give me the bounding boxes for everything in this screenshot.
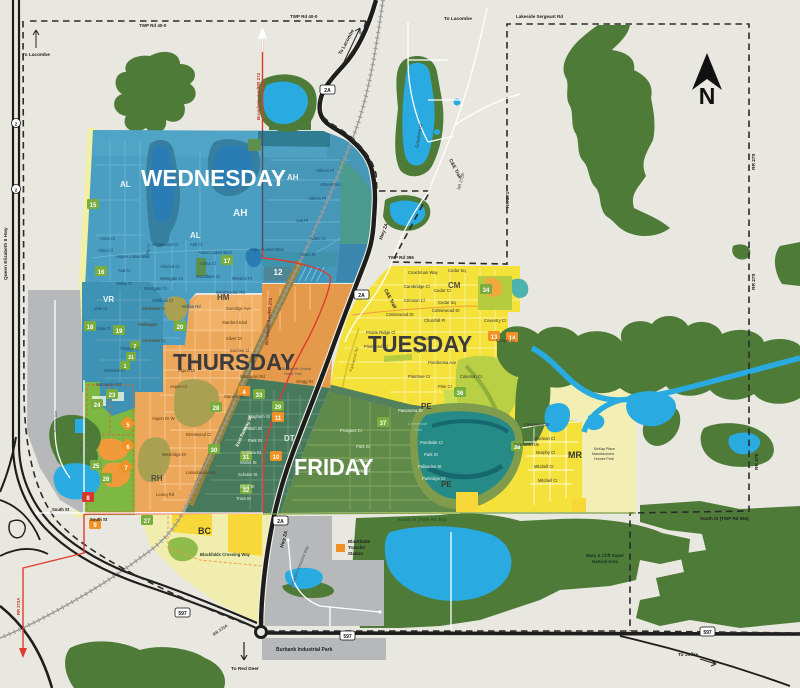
svg-text:15: 15 bbox=[90, 203, 97, 209]
svg-text:Cottonwood Dr: Cottonwood Dr bbox=[386, 312, 415, 317]
svg-text:TWP Rd 40-0: TWP Rd 40-0 bbox=[139, 23, 167, 28]
svg-text:Arrowwood Cl: Arrowwood Cl bbox=[152, 242, 178, 247]
svg-text:AH: AH bbox=[233, 208, 247, 219]
svg-text:Cambridge Cl: Cambridge Cl bbox=[404, 284, 430, 289]
svg-text:Palisades St: Palisades St bbox=[418, 464, 442, 469]
svg-text:RR 270: RR 270 bbox=[751, 273, 757, 290]
svg-text:Westridge Dr: Westridge Dr bbox=[162, 452, 187, 457]
svg-text:19: 19 bbox=[116, 329, 123, 335]
svg-text:Gregg St: Gregg St bbox=[296, 379, 314, 384]
svg-text:Plumtree Cr: Plumtree Cr bbox=[408, 374, 431, 379]
svg-text:Camille Cr: Camille Cr bbox=[420, 336, 440, 341]
svg-text:TWP Rd 40-0: TWP Rd 40-0 bbox=[290, 14, 318, 19]
svg-text:Silver Dr: Silver Dr bbox=[226, 336, 243, 341]
svg-text:Waghorn St: Waghorn St bbox=[248, 414, 271, 419]
svg-text:Sunridge Ave: Sunridge Ave bbox=[226, 306, 252, 311]
svg-text:Athens Pl: Athens Pl bbox=[316, 168, 334, 173]
svg-text:Home Park: Home Park bbox=[284, 372, 302, 376]
svg-text:33: 33 bbox=[256, 393, 263, 399]
svg-text:Coachman Way: Coachman Way bbox=[408, 270, 439, 275]
svg-text:Churchill Pl: Churchill Pl bbox=[424, 318, 445, 323]
svg-text:Mitchell Cr: Mitchell Cr bbox=[534, 464, 554, 469]
svg-text:34: 34 bbox=[483, 288, 490, 294]
svg-text:Park: Park bbox=[414, 427, 423, 432]
svg-text:To Lacombe: To Lacombe bbox=[22, 52, 50, 58]
svg-text:2A: 2A bbox=[358, 293, 365, 299]
svg-text:Vista Tr: Vista Tr bbox=[78, 441, 83, 455]
svg-text:Park St: Park St bbox=[248, 438, 263, 443]
svg-text:MR: MR bbox=[568, 450, 582, 460]
svg-text:Prospect Cr: Prospect Cr bbox=[340, 428, 363, 433]
svg-text:Westgate Cr: Westgate Cr bbox=[144, 286, 168, 291]
svg-text:RR 271: RR 271 bbox=[505, 191, 511, 208]
svg-text:Athens Rd: Athens Rd bbox=[320, 182, 340, 187]
svg-text:Wilson St: Wilson St bbox=[244, 426, 263, 431]
svg-text:Mitchell Cr: Mitchell Cr bbox=[538, 478, 558, 483]
svg-text:16: 16 bbox=[98, 270, 105, 276]
svg-text:18: 18 bbox=[87, 325, 94, 331]
svg-text:RH: RH bbox=[151, 474, 163, 483]
svg-text:Blackfalds Crossing Way: Blackfalds Crossing Way bbox=[200, 552, 251, 557]
svg-text:597: 597 bbox=[703, 630, 712, 636]
svg-text:DT: DT bbox=[284, 434, 295, 443]
svg-text:Vista Cl: Vista Cl bbox=[96, 326, 110, 331]
svg-text:Wellington: Wellington bbox=[138, 322, 158, 327]
svg-text:TWP Rd 395: TWP Rd 395 bbox=[388, 255, 414, 260]
svg-text:25: 25 bbox=[93, 464, 100, 470]
svg-text:Duncan Ave: Duncan Ave bbox=[53, 410, 58, 432]
svg-text:Westgate Cr: Westgate Cr bbox=[160, 276, 184, 281]
svg-text:Ava Cr: Ava Cr bbox=[118, 268, 131, 273]
svg-text:Lansdowne Ave: Lansdowne Ave bbox=[186, 470, 216, 475]
svg-text:Whitlock Cl: Whitlock Cl bbox=[152, 298, 173, 303]
svg-text:Stanley St: Stanley St bbox=[224, 394, 244, 399]
svg-text:Brentwood Cr: Brentwood Cr bbox=[186, 432, 212, 437]
svg-text:South St (TWP Rd 394): South St (TWP Rd 394) bbox=[398, 517, 447, 522]
svg-text:Willow Rd: Willow Rd bbox=[182, 304, 201, 309]
svg-text:Ponderosa Ave: Ponderosa Ave bbox=[428, 360, 457, 365]
svg-text:Manufactured: Manufactured bbox=[592, 452, 614, 456]
svg-text:20: 20 bbox=[177, 325, 184, 331]
svg-text:Aspen Dr: Aspen Dr bbox=[178, 368, 196, 373]
svg-text:Prairie Ridge Cl: Prairie Ridge Cl bbox=[366, 330, 395, 335]
svg-text:Burbank Industrial Park: Burbank Industrial Park bbox=[276, 647, 333, 653]
svg-text:Cyprus Rd: Cyprus Rd bbox=[414, 348, 434, 353]
svg-text:Arlen Cl: Arlen Cl bbox=[98, 248, 113, 253]
svg-text:Vintage Cl: Vintage Cl bbox=[120, 346, 139, 351]
svg-text:AL: AL bbox=[190, 231, 201, 240]
svg-text:Broadway Ave/RR 272: Broadway Ave/RR 272 bbox=[256, 72, 261, 120]
svg-text:McKay Place: McKay Place bbox=[594, 447, 615, 451]
svg-text:Park St: Park St bbox=[424, 452, 439, 457]
svg-text:VR: VR bbox=[103, 295, 114, 304]
svg-text:Cottonwood Dr: Cottonwood Dr bbox=[432, 308, 461, 313]
svg-text:Ava Pl: Ava Pl bbox=[296, 218, 308, 223]
svg-text:Leung Rd: Leung Rd bbox=[156, 492, 175, 497]
svg-text:To Lacombe: To Lacombe bbox=[444, 16, 472, 22]
svg-text:Aspen Lakes Blvd: Aspen Lakes Blvd bbox=[250, 247, 284, 252]
svg-text:Schular St: Schular St bbox=[238, 472, 258, 477]
svg-text:Winks St: Winks St bbox=[240, 460, 257, 465]
svg-text:Westview Cr: Westview Cr bbox=[142, 306, 166, 311]
svg-text:Pine Cr: Pine Cr bbox=[438, 384, 453, 389]
svg-text:Westbrooke Rd: Westbrooke Rd bbox=[216, 290, 245, 295]
svg-text:RR 270: RR 270 bbox=[754, 453, 760, 470]
svg-text:Indiana St: Indiana St bbox=[242, 450, 262, 455]
svg-text:Aspen Cr: Aspen Cr bbox=[170, 384, 188, 389]
svg-text:Lakeside Sergeant Rd: Lakeside Sergeant Rd bbox=[516, 14, 563, 19]
svg-text:17: 17 bbox=[224, 259, 231, 265]
svg-text:11: 11 bbox=[275, 416, 282, 422]
svg-text:RR 270: RR 270 bbox=[751, 153, 757, 170]
svg-text:South St: South St bbox=[90, 517, 108, 522]
svg-text:Vale Cl: Vale Cl bbox=[94, 306, 107, 311]
svg-text:10: 10 bbox=[273, 455, 280, 461]
svg-text:Station: Station bbox=[348, 551, 363, 556]
svg-text:2A: 2A bbox=[277, 519, 284, 525]
svg-text:Coleman Cr: Coleman Cr bbox=[460, 374, 483, 379]
svg-text:Shull St: Shull St bbox=[240, 484, 255, 489]
svg-text:30: 30 bbox=[211, 448, 218, 454]
svg-text:Homes Park: Homes Park bbox=[594, 457, 614, 461]
svg-text:BC: BC bbox=[198, 526, 211, 536]
svg-text:Aspen Dr W: Aspen Dr W bbox=[152, 416, 175, 421]
svg-text:Cedar Sq: Cedar Sq bbox=[448, 268, 466, 273]
svg-text:29: 29 bbox=[275, 405, 282, 411]
svg-text:Athens Pl: Athens Pl bbox=[308, 196, 326, 201]
svg-text:Natural Area: Natural Area bbox=[592, 559, 619, 564]
svg-text:12: 12 bbox=[274, 268, 283, 277]
svg-text:597: 597 bbox=[343, 634, 352, 640]
svg-text:597: 597 bbox=[178, 611, 187, 617]
svg-text:21: 21 bbox=[128, 355, 134, 361]
svg-text:Crimson Cl: Crimson Cl bbox=[404, 298, 425, 303]
svg-text:Trout St: Trout St bbox=[236, 496, 252, 501]
svg-text:AH: AH bbox=[287, 173, 299, 182]
svg-text:To Red Deer: To Red Deer bbox=[231, 666, 259, 672]
svg-text:Pinnacle Cl: Pinnacle Cl bbox=[352, 458, 373, 463]
svg-text:Pondside Cr: Pondside Cr bbox=[420, 440, 444, 445]
svg-text:Blacksmith Mobile: Blacksmith Mobile bbox=[282, 367, 311, 371]
svg-text:Panorama Dr: Panorama Dr bbox=[398, 408, 424, 413]
svg-text:27: 27 bbox=[144, 519, 151, 525]
svg-text:Sunrise Cl: Sunrise Cl bbox=[230, 348, 249, 353]
svg-text:Eastpointe Dr: Eastpointe Dr bbox=[524, 422, 550, 427]
svg-text:28: 28 bbox=[213, 406, 220, 412]
svg-text:Womacks Rd: Womacks Rd bbox=[96, 382, 121, 387]
svg-text:Park St: Park St bbox=[356, 444, 371, 449]
svg-text:Mary & Cliff Soper: Mary & Cliff Soper bbox=[586, 553, 624, 558]
svg-text:Blackfalds: Blackfalds bbox=[348, 539, 371, 544]
svg-text:Aztec St: Aztec St bbox=[300, 252, 316, 257]
svg-text:Womacks Rd: Womacks Rd bbox=[240, 374, 265, 379]
svg-text:Murphy Cl: Murphy Cl bbox=[536, 450, 555, 455]
svg-text:Aztec Cr: Aztec Cr bbox=[310, 236, 327, 241]
svg-text:23: 23 bbox=[109, 393, 116, 399]
svg-text:Palmer Circle: Palmer Circle bbox=[514, 442, 540, 447]
svg-text:Winston Pl: Winston Pl bbox=[232, 276, 252, 281]
svg-text:Cedar Cr: Cedar Cr bbox=[434, 288, 452, 293]
svg-text:Almond Cr: Almond Cr bbox=[160, 264, 180, 269]
svg-text:Westview Cr: Westview Cr bbox=[142, 338, 166, 343]
svg-text:Valley Cr: Valley Cr bbox=[116, 281, 133, 286]
svg-text:Vermont Cl: Vermont Cl bbox=[104, 368, 125, 373]
svg-text:Transfer: Transfer bbox=[348, 545, 366, 550]
svg-text:Queen Elizabeth II Hwy: Queen Elizabeth II Hwy bbox=[3, 227, 9, 280]
svg-text:Pinewood Cl: Pinewood Cl bbox=[364, 344, 388, 349]
svg-text:South St (TWP Rd 394): South St (TWP Rd 394) bbox=[700, 516, 749, 521]
svg-text:South St: South St bbox=[52, 507, 70, 512]
svg-text:Ash Cl: Ash Cl bbox=[190, 242, 202, 247]
svg-text:Anna Cl: Anna Cl bbox=[100, 236, 115, 241]
svg-text:2A: 2A bbox=[324, 88, 331, 94]
svg-text:To Joffre: To Joffre bbox=[678, 652, 698, 658]
svg-text:Coventry Cl: Coventry Cl bbox=[484, 318, 506, 323]
svg-text:PE: PE bbox=[441, 480, 452, 489]
svg-text:WEDNESDAY: WEDNESDAY bbox=[141, 165, 286, 191]
svg-text:Portway Cl: Portway Cl bbox=[350, 468, 370, 473]
svg-text:N: N bbox=[699, 83, 716, 109]
svg-text:Aspen Lakes Blvd: Aspen Lakes Blvd bbox=[198, 250, 232, 255]
svg-text:Cedar Sq: Cedar Sq bbox=[438, 300, 456, 305]
svg-text:24: 24 bbox=[94, 403, 101, 409]
svg-text:RR 273A: RR 273A bbox=[16, 598, 21, 615]
svg-text:Stanford Blvd: Stanford Blvd bbox=[222, 320, 248, 325]
svg-text:Maclean Cl: Maclean Cl bbox=[534, 436, 555, 441]
svg-text:26: 26 bbox=[103, 477, 110, 483]
svg-text:Parkridge Cr: Parkridge Cr bbox=[422, 476, 446, 481]
svg-text:37: 37 bbox=[380, 421, 387, 427]
svg-text:AL: AL bbox=[120, 180, 131, 189]
svg-text:Woodbine Cl: Woodbine Cl bbox=[196, 274, 220, 279]
svg-text:36: 36 bbox=[457, 391, 464, 397]
svg-text:Centennial: Centennial bbox=[408, 421, 427, 426]
svg-text:Cooper Cl: Cooper Cl bbox=[496, 338, 515, 343]
svg-text:Adina Cl: Adina Cl bbox=[200, 261, 216, 266]
svg-text:Aspen Lakes Blvd: Aspen Lakes Blvd bbox=[116, 254, 150, 259]
